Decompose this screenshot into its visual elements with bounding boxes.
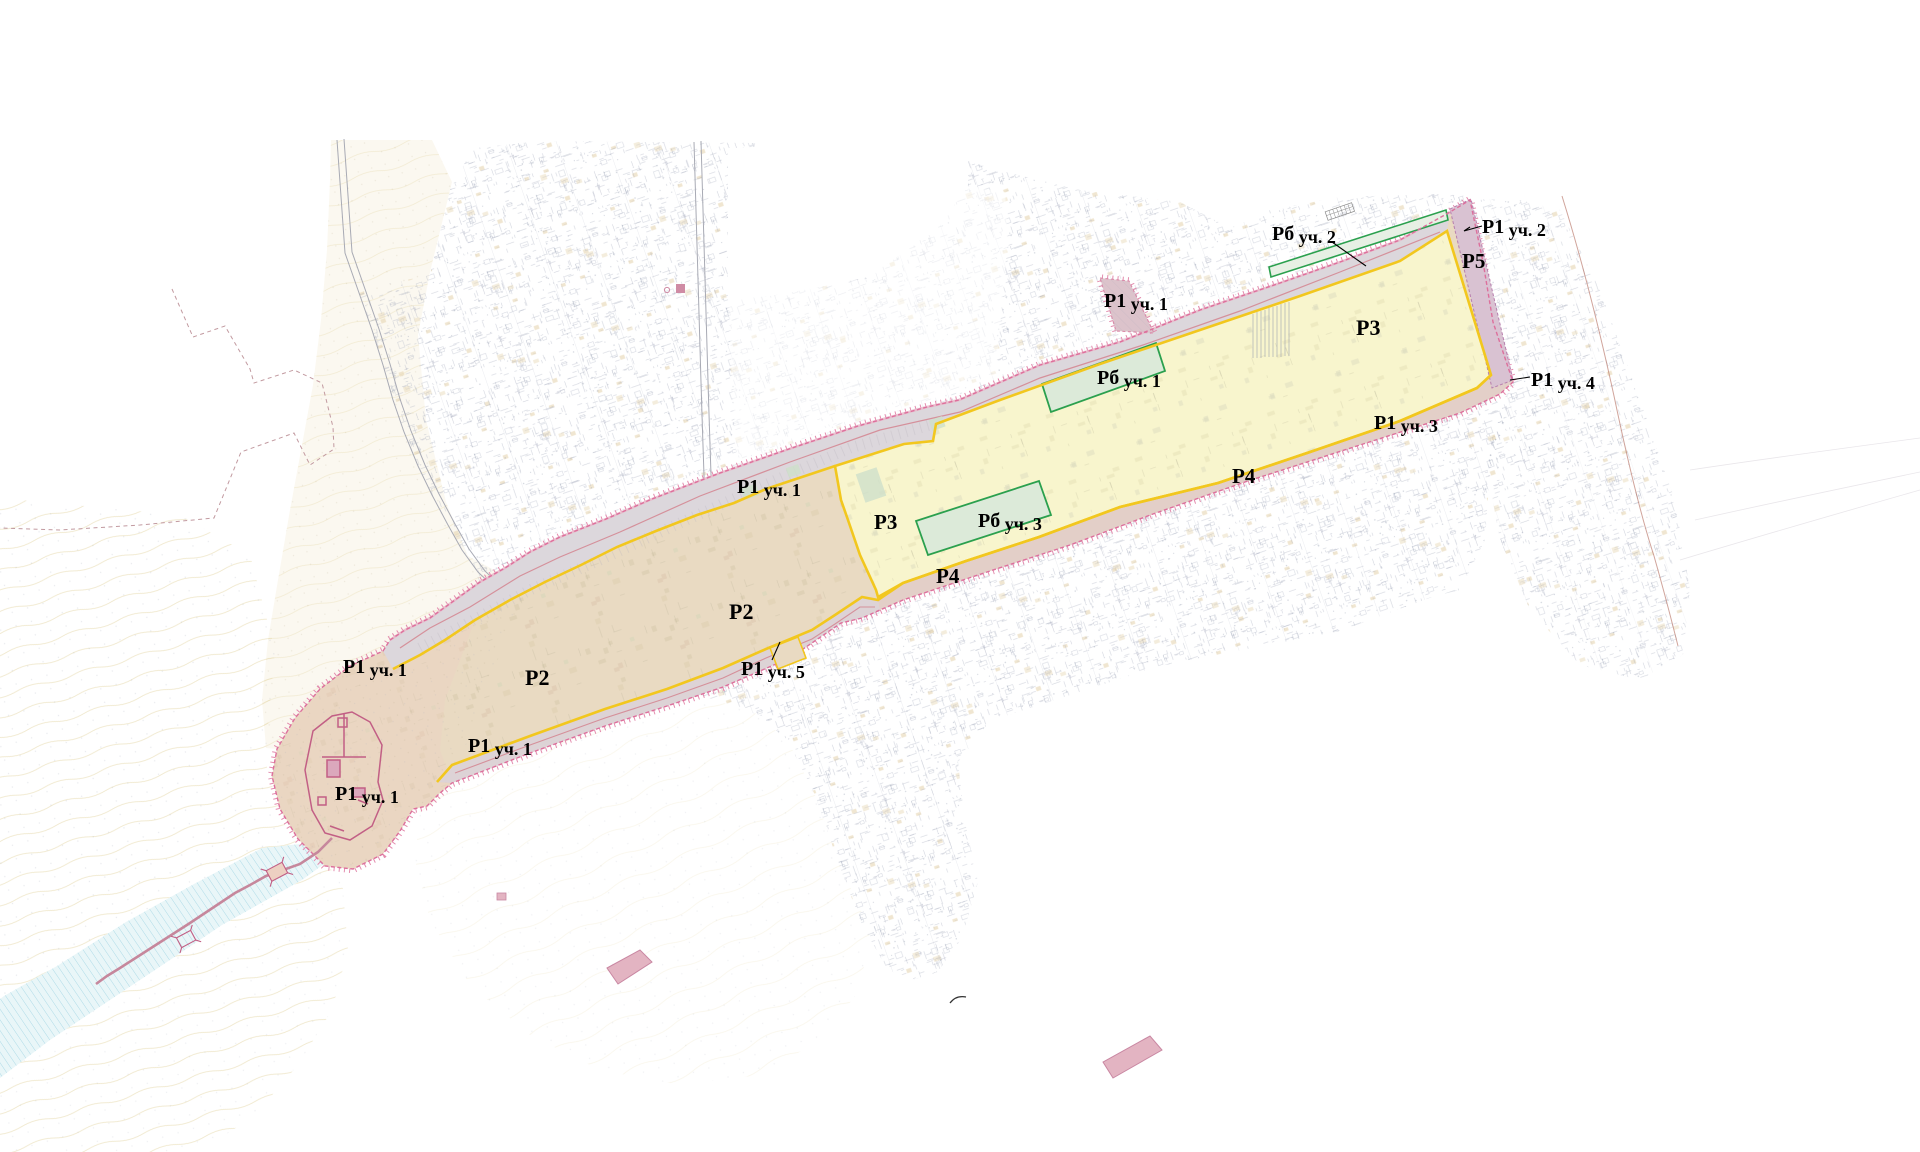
svg-text:Р1 уч. 2: Р1 уч. 2 [1482,216,1546,240]
svg-text:Рб уч. 3: Рб уч. 3 [978,510,1042,534]
svg-text:Р1 уч. 1: Р1 уч. 1 [468,735,532,759]
svg-text:Р1 уч. 1: Р1 уч. 1 [1104,290,1168,314]
svg-text:Р1 уч. 1: Р1 уч. 1 [737,476,801,500]
svg-text:Рб уч. 2: Рб уч. 2 [1272,223,1336,247]
svg-text:Р2: Р2 [729,599,753,624]
svg-text:Р1 уч. 5: Р1 уч. 5 [741,658,805,682]
svg-text:Р2: Р2 [525,665,549,690]
svg-text:Р1 уч. 1: Р1 уч. 1 [343,656,407,680]
svg-text:Р4: Р4 [936,564,960,588]
svg-text:Р1 уч. 3: Р1 уч. 3 [1374,412,1438,436]
svg-text:Р4: Р4 [1232,464,1256,488]
svg-text:Рб уч. 1: Рб уч. 1 [1097,367,1161,391]
svg-text:Р5: Р5 [1462,249,1485,273]
svg-text:Р3: Р3 [874,510,897,534]
svg-text:Р3: Р3 [1356,315,1380,340]
svg-text:Р1 уч. 1: Р1 уч. 1 [335,783,399,807]
svg-text:Р1 уч. 4: Р1 уч. 4 [1531,369,1595,393]
